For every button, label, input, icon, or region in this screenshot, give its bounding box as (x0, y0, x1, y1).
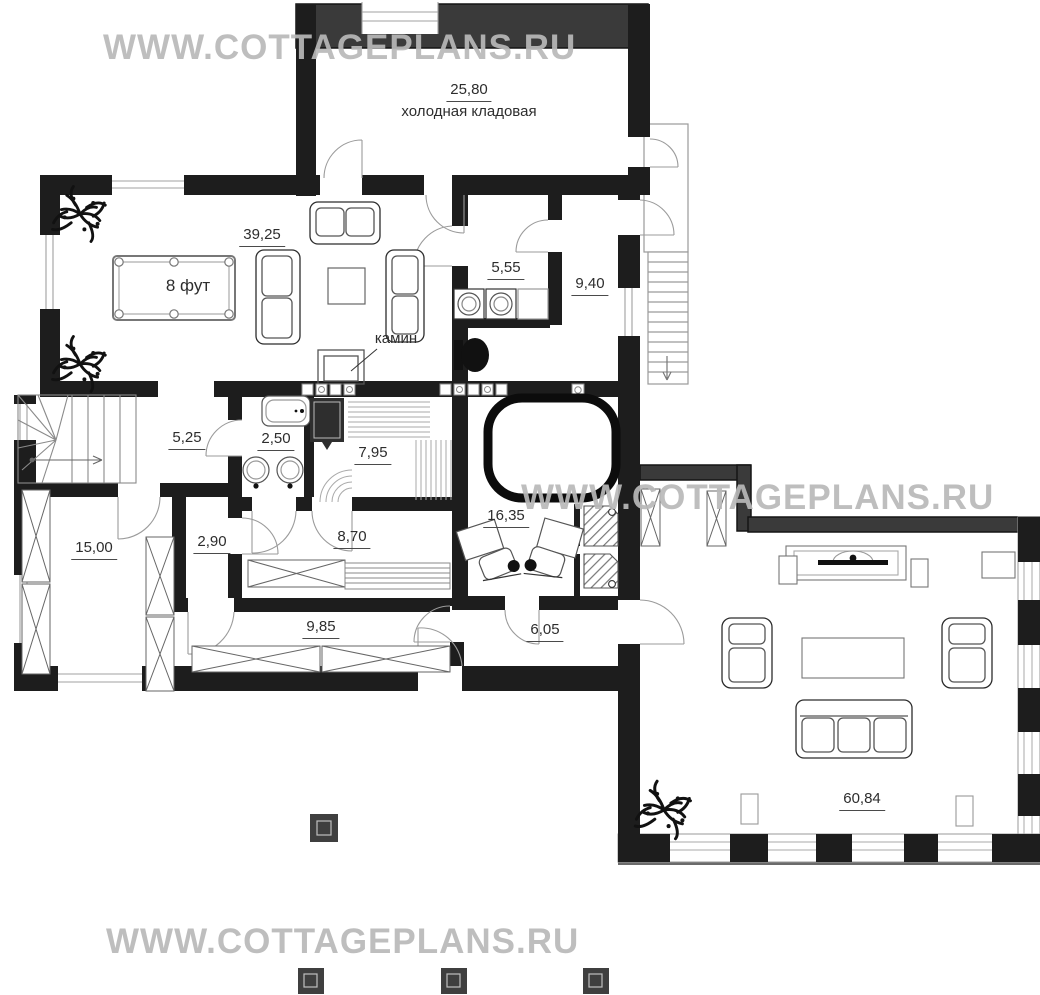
room-label-storage-room: 15,00 (71, 538, 117, 560)
room-label-lounge: 8,70 (333, 527, 370, 549)
shower-loungers (584, 506, 618, 588)
slatted-bench (345, 563, 450, 589)
spa-chairs (456, 518, 583, 588)
floor-plan-drawing (0, 0, 1040, 995)
coffee-table (328, 268, 365, 304)
terrace-sofa (796, 700, 912, 758)
room-label-bedroom: 9,85 (302, 617, 339, 639)
pillars (298, 814, 609, 994)
toilet (454, 338, 489, 372)
room-label-corridor: 2,90 (193, 532, 230, 554)
room-label-sauna: 7,95 (354, 443, 391, 465)
floor-plan: WWW.COTTAGEPLANS.RU WWW.COTTAGEPLANS.RU … (0, 0, 1040, 995)
billiard-table-label: 8 фут (166, 276, 210, 296)
room-label-entry-hall: 9,40 (571, 274, 608, 296)
plant-icon (635, 781, 690, 839)
fireplace-label: камин (375, 330, 417, 347)
room-label-cold-storage: 25,80 холодная кладовая (401, 80, 536, 121)
fireplace (318, 350, 364, 384)
room-label-billiard: 39,25 (239, 225, 285, 247)
exterior-stairs (644, 124, 688, 384)
hot-tub (488, 398, 616, 498)
washing-machines (454, 289, 548, 319)
side-tables (741, 552, 1015, 826)
room-name: холодная кладовая (401, 102, 536, 122)
bathtub (262, 396, 310, 426)
room-label-spa: 16,35 (483, 506, 529, 528)
sinks (243, 457, 303, 489)
windows (14, 2, 640, 691)
tv-console (786, 546, 906, 580)
room-label-stair-hall: 5,25 (168, 428, 205, 450)
room-label-bathroom: 2,50 (257, 429, 294, 451)
sauna-stove (310, 398, 344, 450)
room-label-laundry: 5,55 (487, 258, 524, 280)
terrace-table (802, 638, 904, 678)
room-label-vestibule: 6,05 (526, 620, 563, 642)
room-label-terrace: 60,84 (839, 789, 885, 811)
